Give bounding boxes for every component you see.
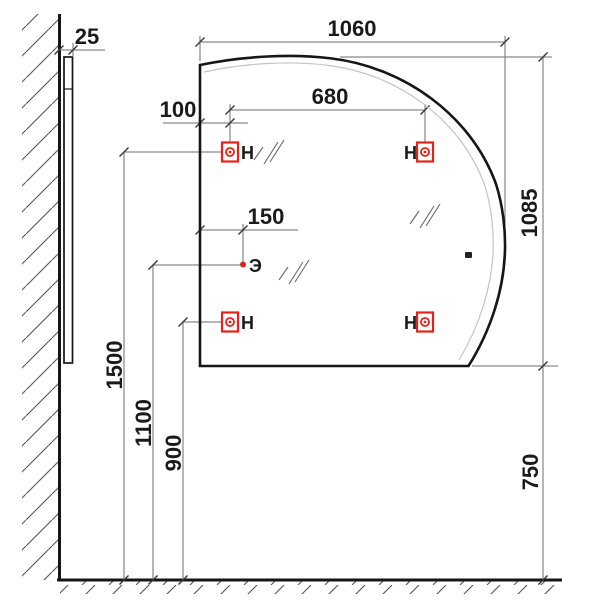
mount-point-bottom-left	[222, 313, 238, 332]
wall-hatching	[22, 14, 58, 580]
dim-top-mount-height: 1500	[102, 341, 127, 390]
dim-switch-inset: 150	[248, 204, 285, 229]
sensor-dash-icon	[465, 252, 472, 258]
symbol-labels: Н Н Н Н Э	[241, 143, 417, 333]
dim-width: 1060	[328, 16, 377, 41]
mount-point-bottom-right	[417, 313, 433, 332]
reflection-mark	[410, 204, 440, 228]
mount-points	[222, 143, 433, 332]
mount-label-top-left: Н	[241, 143, 254, 163]
dimension-ticks	[55, 38, 548, 585]
mount-point-top-left	[222, 143, 238, 162]
switch-dot-icon	[240, 262, 246, 268]
mount-label-bottom-right: Н	[404, 313, 417, 333]
dim-mount-spacing: 680	[312, 84, 349, 109]
mirror-side-profile	[64, 57, 73, 363]
switch-point	[240, 262, 246, 268]
switch-label: Э	[249, 256, 262, 276]
dimension-labels: 25 1060 680 100 150 1085 1500 1100 900 7…	[75, 16, 543, 490]
mount-label-top-right: Н	[404, 143, 417, 163]
floor-hatching	[60, 581, 562, 594]
reflection-mark	[279, 260, 309, 284]
dim-bottom-mount-height: 900	[161, 435, 186, 472]
wall	[22, 14, 60, 580]
dim-switch-height: 1100	[131, 399, 156, 447]
technical-drawing-canvas: Н Н Н Н Э 25 1060 680 100 150 1085 1500 …	[0, 0, 600, 600]
installation-drawing: Н Н Н Н Э 25 1060 680 100 150 1085 1500 …	[0, 0, 600, 600]
dim-wall-offset: 25	[75, 24, 99, 49]
mount-label-bottom-left: Н	[241, 313, 254, 333]
floor	[57, 580, 562, 594]
dim-mount-left-inset: 100	[160, 97, 197, 122]
dim-height: 1085	[517, 189, 542, 238]
dim-bottom-edge-height: 750	[518, 454, 543, 491]
reflection-mark	[254, 140, 284, 164]
mount-point-top-right	[417, 143, 433, 162]
